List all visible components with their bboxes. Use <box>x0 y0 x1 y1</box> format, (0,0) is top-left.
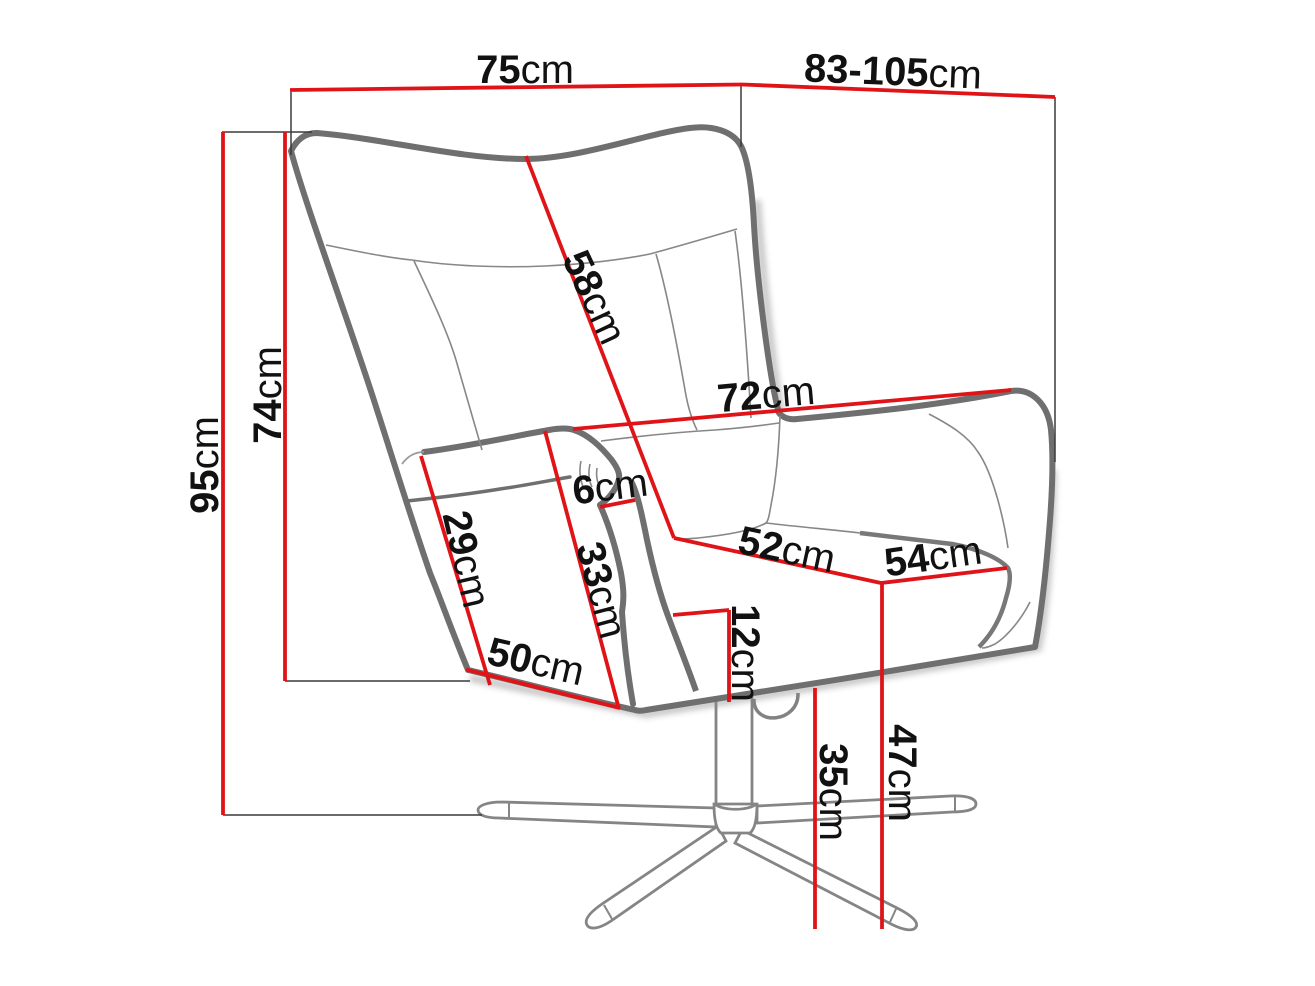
svg-text:75cm: 75cm <box>476 48 574 92</box>
svg-text:35cm: 35cm <box>811 743 855 841</box>
svg-text:95cm: 95cm <box>183 416 227 514</box>
svg-text:74cm: 74cm <box>246 346 290 444</box>
svg-text:47cm: 47cm <box>880 724 924 822</box>
svg-text:83-105cm: 83-105cm <box>803 46 983 97</box>
svg-text:6cm: 6cm <box>570 461 650 514</box>
svg-text:72cm: 72cm <box>715 369 816 421</box>
svg-text:12cm: 12cm <box>723 604 767 702</box>
